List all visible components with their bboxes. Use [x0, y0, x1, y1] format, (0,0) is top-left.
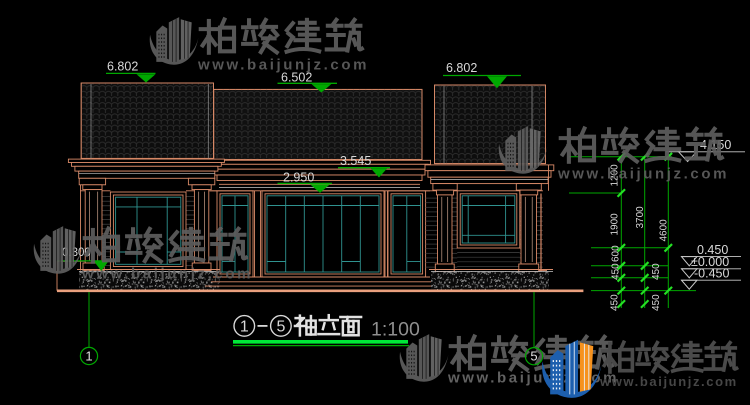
- svg-text:3.545: 3.545: [340, 154, 371, 168]
- svg-text:450: 450: [611, 263, 622, 280]
- svg-text:www.baijunjz.com: www.baijunjz.com: [81, 266, 253, 283]
- svg-text:1:100: 1:100: [371, 319, 420, 341]
- svg-text:www.baijunjz.com: www.baijunjz.com: [197, 57, 369, 74]
- svg-text:1: 1: [85, 349, 92, 364]
- svg-text:www.baijunjz.com: www.baijunjz.com: [557, 166, 729, 183]
- svg-text:1: 1: [240, 319, 249, 336]
- svg-text:1900: 1900: [610, 213, 621, 236]
- svg-text:2.950: 2.950: [283, 170, 314, 184]
- svg-text:3700: 3700: [635, 206, 646, 229]
- svg-text:6.802: 6.802: [446, 61, 477, 75]
- svg-text:www.baijunjz.com: www.baijunjz.com: [599, 374, 738, 389]
- svg-text:5: 5: [276, 319, 285, 336]
- svg-text:450: 450: [651, 294, 662, 311]
- svg-text:600: 600: [611, 245, 622, 262]
- svg-text:450: 450: [651, 263, 662, 280]
- svg-text:5: 5: [530, 349, 537, 364]
- svg-text:-0.450: -0.450: [694, 267, 729, 281]
- svg-text:4600: 4600: [659, 219, 670, 242]
- svg-text:450: 450: [610, 294, 621, 311]
- svg-text:6.802: 6.802: [107, 60, 138, 74]
